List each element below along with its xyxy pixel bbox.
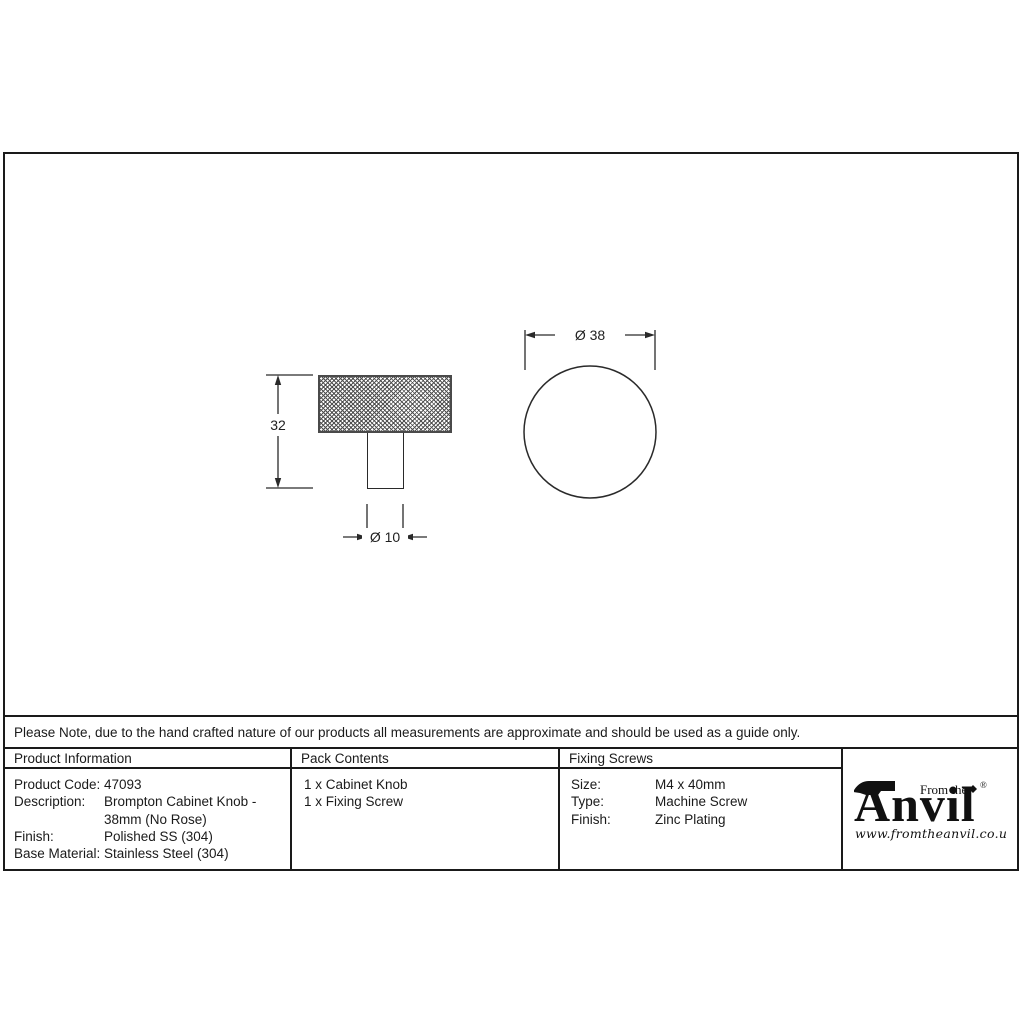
dimension-knob-diameter-label: Ø 38 [559,326,621,344]
base-material-row: Base Material: Stainless Steel (304) [5,845,290,862]
screw-size-row: Size: M4 x 40mm [560,776,841,793]
logo-url: www.fromtheanvil.co.uk [855,826,1006,841]
screw-size-label: Size: [560,776,655,793]
product-code-label: Product Code: [5,776,104,793]
finish-label: Finish: [5,828,104,845]
fixing-screws-header: Fixing Screws [560,749,841,769]
pack-item: 1 x Cabinet Knob [292,776,558,793]
from-the-anvil-logo: Anvil From the ® www.fromtheanvil.co.uk [854,777,1006,841]
technical-drawing-frame: 32 Ø 10 Ø 38 [3,152,1019,717]
registered-trademark-symbol: ® [980,780,987,790]
note-bar: Please Note, due to the hand crafted nat… [3,715,1019,749]
base-material-value: Stainless Steel (304) [104,845,284,862]
dimension-height-label: 32 [261,416,295,434]
screw-size-value: M4 x 40mm [655,776,835,793]
dimension-stem-diameter-label: Ø 10 [362,528,408,546]
description-value: Brompton Cabinet Knob - 38mm (No Rose) [104,793,284,828]
screw-finish-row: Finish: Zinc Plating [560,811,841,828]
note-text: Please Note, due to the hand crafted nat… [14,725,800,740]
pack-contents-column: Pack Contents 1 x Cabinet Knob 1 x Fixin… [292,749,560,869]
screw-type-value: Machine Screw [655,793,835,810]
base-material-label: Base Material: [5,845,104,862]
knob-stem [367,433,404,489]
finish-value: Polished SS (304) [104,828,284,845]
spec-table: Product Information Product Code: 47093 … [3,747,1019,871]
screw-type-row: Type: Machine Screw [560,793,841,810]
fixing-screws-column: Fixing Screws Size: M4 x 40mm Type: Mach… [560,749,843,869]
pack-contents-header: Pack Contents [292,749,558,769]
product-code-value: 47093 [104,776,284,793]
screw-finish-value: Zinc Plating [655,811,835,828]
description-label: Description: [5,793,104,828]
technical-drawing: 32 Ø 10 Ø 38 [5,154,1017,715]
brand-logo-cell: Anvil From the ® www.fromtheanvil.co.uk [843,749,1017,869]
product-code-row: Product Code: 47093 [5,776,290,793]
screw-finish-label: Finish: [560,811,655,828]
finish-row: Finish: Polished SS (304) [5,828,290,845]
logo-tagline: From the [920,782,968,797]
spec-sheet: 32 Ø 10 Ø 38 Please Note, due to the han… [0,0,1024,1024]
dimension-lines [5,154,1017,715]
knob-knurled-head [318,375,452,433]
pack-item: 1 x Fixing Screw [292,793,558,810]
screw-type-label: Type: [560,793,655,810]
description-row: Description: Brompton Cabinet Knob - 38m… [5,793,290,828]
product-information-column: Product Information Product Code: 47093 … [5,749,292,869]
product-information-header: Product Information [5,749,290,769]
